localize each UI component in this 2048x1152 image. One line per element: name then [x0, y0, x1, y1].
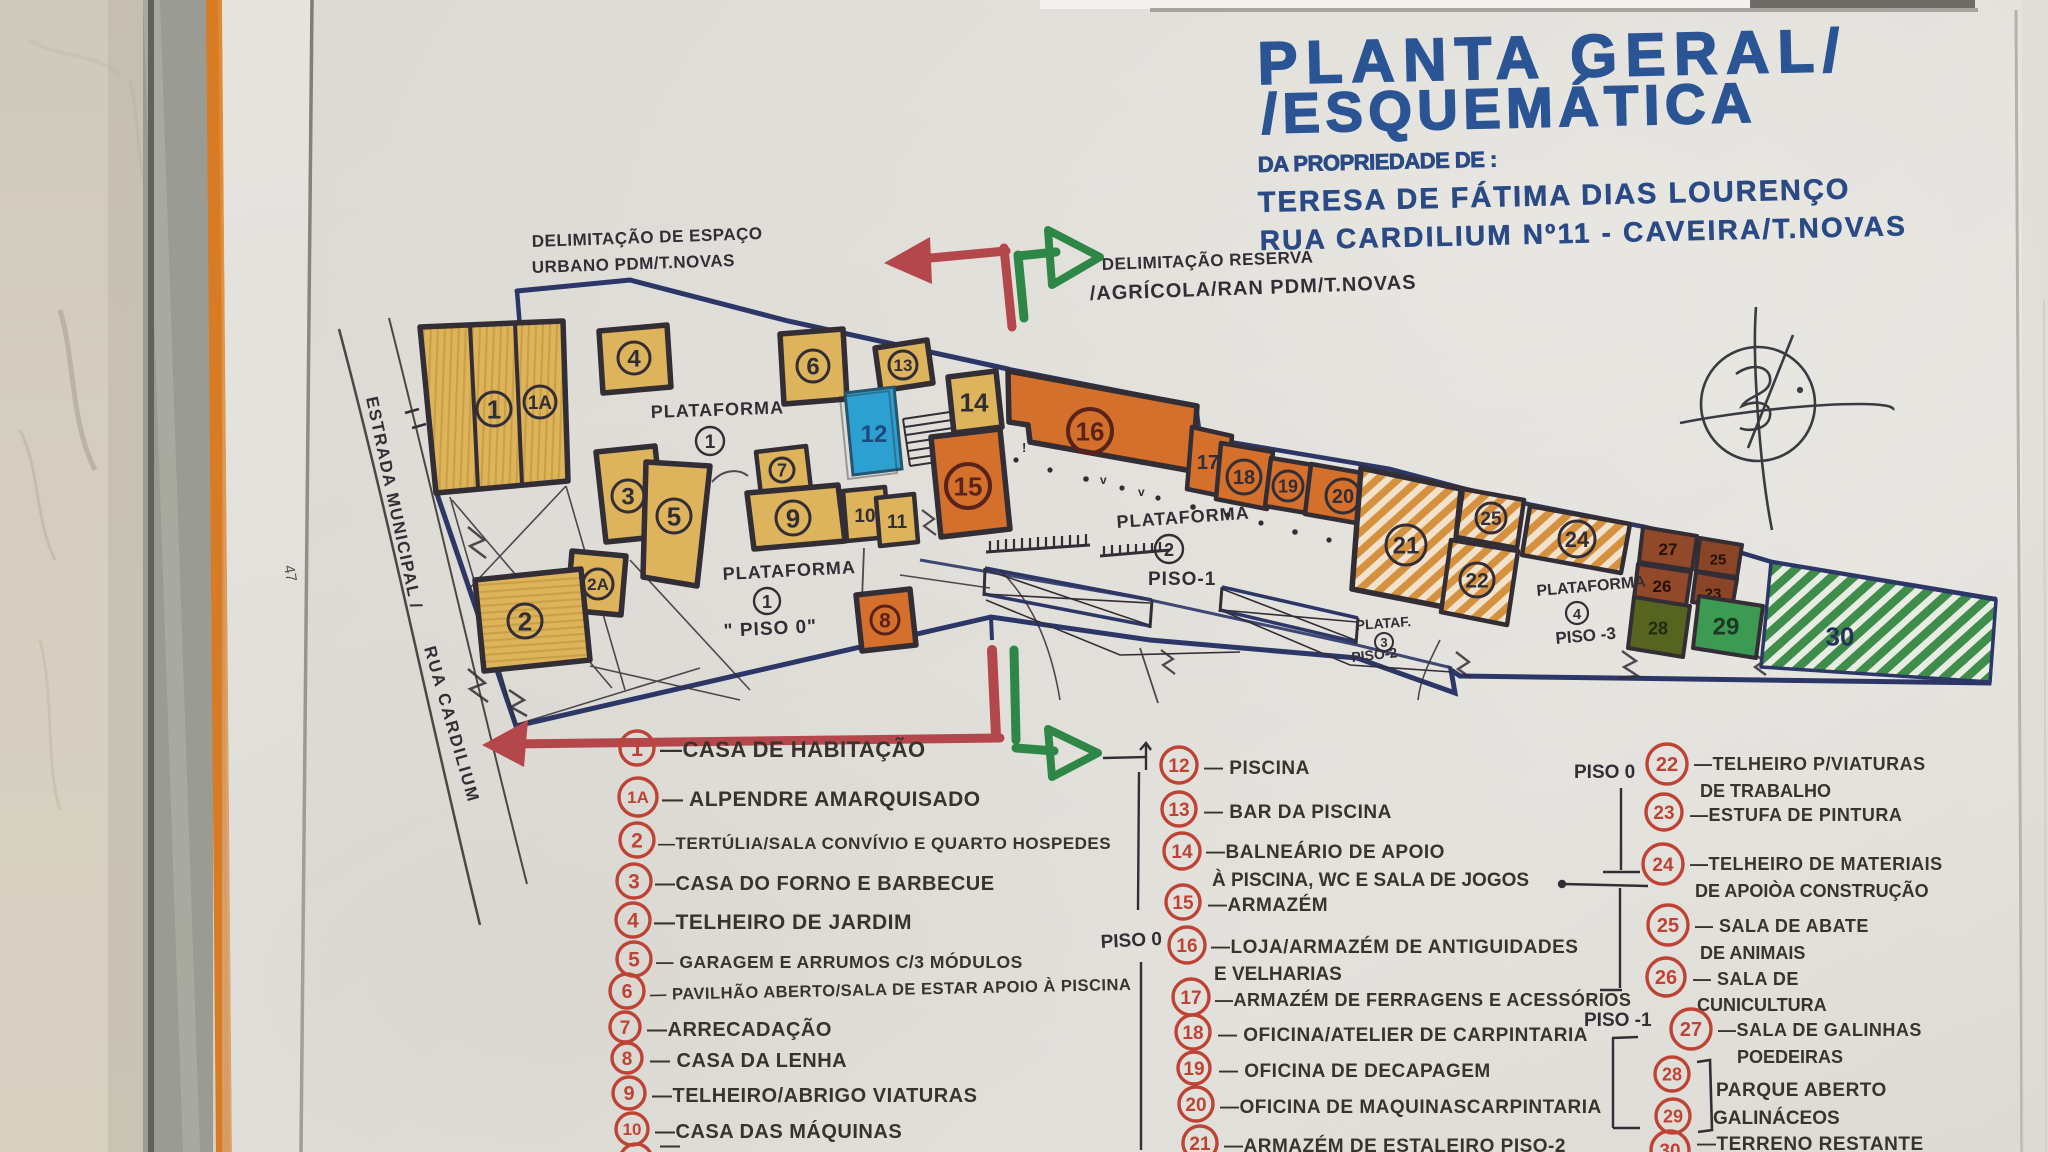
svg-text:POEDEIRAS: POEDEIRAS	[1737, 1047, 1843, 1067]
svg-text:— CASA DA LENHA: — CASA DA LENHA	[650, 1050, 847, 1072]
svg-text:18: 18	[1233, 467, 1255, 489]
svg-text:PISO 0: PISO 0	[1100, 929, 1162, 953]
svg-text:30: 30	[1659, 1141, 1680, 1152]
svg-text:GALINÁCEOS: GALINÁCEOS	[1713, 1107, 1840, 1129]
svg-text:—CASA DO FORNO E BARBECUE: —CASA DO FORNO E BARBECUE	[655, 873, 995, 895]
svg-text:3: 3	[621, 484, 634, 511]
svg-text:13: 13	[894, 356, 913, 375]
svg-text:DE ANIMAIS: DE ANIMAIS	[1700, 943, 1805, 963]
svg-text:2A: 2A	[587, 575, 609, 594]
svg-text:4: 4	[627, 346, 641, 373]
svg-text:12: 12	[1168, 756, 1189, 777]
svg-text:DE TRABALHO: DE TRABALHO	[1700, 781, 1831, 801]
svg-text:— GARAGEM E ARRUMOS C/3 MÓDULO: — GARAGEM E ARRUMOS C/3 MÓDULOS	[656, 951, 1023, 972]
svg-text:—TERTÚLIA/SALA CONVÍVIO E QUAR: —TERTÚLIA/SALA CONVÍVIO E QUARTO HOSPEDE…	[658, 834, 1111, 853]
svg-text:—BALNEÁRIO DE APOIO: —BALNEÁRIO DE APOIO	[1206, 841, 1445, 863]
svg-text:2: 2	[518, 606, 532, 636]
svg-text:4: 4	[1573, 606, 1582, 623]
svg-text:— PISCINA: — PISCINA	[1204, 758, 1310, 779]
svg-text:18: 18	[1182, 1023, 1203, 1044]
svg-text:—TELHEIRO/ABRIGO VIATURAS: —TELHEIRO/ABRIGO VIATURAS	[652, 1085, 977, 1107]
svg-text:22: 22	[1656, 754, 1678, 776]
svg-text:27: 27	[1659, 540, 1678, 559]
svg-text:—ARMAZÉM DE FERRAGENS E ACESSÓ: —ARMAZÉM DE FERRAGENS E ACESSÓRIOS	[1215, 989, 1631, 1010]
svg-text:28: 28	[1662, 1064, 1682, 1084]
svg-text:24: 24	[1652, 855, 1674, 876]
svg-text:13: 13	[1168, 800, 1189, 821]
svg-text:14: 14	[1171, 842, 1193, 863]
svg-text:16: 16	[1076, 416, 1105, 446]
svg-text:21: 21	[1393, 533, 1420, 560]
svg-text:8: 8	[622, 1049, 633, 1070]
svg-text:1: 1	[762, 592, 772, 612]
svg-text:— BAR DA PISCINA: — BAR DA PISCINA	[1204, 802, 1392, 823]
svg-text:CUNICULTURA: CUNICULTURA	[1697, 995, 1827, 1015]
svg-text:DE APOIÒA CONSTRUÇÃO: DE APOIÒA CONSTRUÇÃO	[1695, 880, 1929, 901]
svg-text:10: 10	[623, 1120, 642, 1139]
svg-text:PISO 0: PISO 0	[1574, 762, 1635, 783]
svg-text:PARQUE ABERTO: PARQUE ABERTO	[1716, 1080, 1887, 1101]
svg-text:PISO-1: PISO-1	[1148, 569, 1216, 590]
svg-text:27: 27	[1680, 1019, 1702, 1041]
svg-text:3: 3	[628, 871, 640, 894]
svg-text:17: 17	[1197, 452, 1219, 474]
svg-text:7: 7	[620, 1018, 631, 1039]
svg-text:26: 26	[1653, 577, 1672, 596]
svg-text:6: 6	[806, 354, 819, 381]
svg-text:21: 21	[1189, 1134, 1211, 1152]
svg-text:— OFICINA/ATELIER DE CARPINTAR: — OFICINA/ATELIER DE CARPINTARIA	[1218, 1025, 1588, 1046]
svg-text:5: 5	[667, 501, 681, 531]
svg-text:11: 11	[887, 512, 908, 533]
svg-text:—CASA DE HABITAÇÃO: —CASA DE HABITAÇÃO	[660, 737, 926, 762]
svg-text:47: 47	[280, 564, 300, 583]
svg-text:12: 12	[861, 421, 888, 448]
svg-text:—ESTUFA DE PINTURA: —ESTUFA DE PINTURA	[1690, 805, 1902, 825]
svg-text:—ARMAZÉM DE ESTALEIRO PISO-2: —ARMAZÉM DE ESTALEIRO PISO-2	[1224, 1135, 1566, 1152]
svg-text:v: v	[1138, 485, 1145, 499]
svg-text:—TELHEIRO DE JARDIM: —TELHEIRO DE JARDIM	[654, 911, 912, 934]
svg-text:15: 15	[1172, 893, 1194, 914]
svg-text:19: 19	[1278, 476, 1298, 496]
svg-text:—ARMAZÉM: —ARMAZÉM	[1208, 894, 1328, 916]
svg-text:—: —	[660, 1135, 680, 1152]
svg-text:—SALA DE GALINHAS: —SALA DE GALINHAS	[1718, 1020, 1922, 1040]
svg-text:—TELHEIRO P/VIATURAS: —TELHEIRO P/VIATURAS	[1694, 754, 1926, 774]
svg-text:25: 25	[1710, 551, 1727, 568]
svg-text:19: 19	[1183, 1059, 1204, 1080]
svg-text:20: 20	[1332, 486, 1354, 508]
svg-text:1: 1	[705, 432, 716, 453]
svg-text:v: v	[1100, 473, 1107, 487]
svg-text:7: 7	[777, 460, 787, 480]
svg-text:/ESQUEMÁTICA: /ESQUEMÁTICA	[1261, 71, 1758, 145]
svg-text:23: 23	[1653, 803, 1674, 824]
svg-text:10: 10	[854, 506, 875, 527]
svg-text:— SALA DE: — SALA DE	[1693, 969, 1799, 989]
svg-text:9: 9	[623, 1083, 634, 1105]
svg-text:1: 1	[487, 394, 501, 424]
svg-text:6: 6	[621, 981, 632, 1003]
svg-text:1: 1	[631, 736, 643, 761]
svg-text:1A: 1A	[528, 393, 553, 414]
svg-text:25: 25	[1657, 915, 1679, 937]
svg-text:29: 29	[1663, 1106, 1683, 1126]
svg-text:8: 8	[879, 610, 891, 633]
svg-text:1A: 1A	[627, 788, 649, 807]
svg-text:—TERRENO RESTANTE: —TERRENO RESTANTE	[1697, 1134, 1924, 1152]
svg-text:14: 14	[960, 387, 989, 417]
svg-text:— SALA DE ABATE: — SALA DE ABATE	[1695, 916, 1869, 936]
svg-text:29: 29	[1713, 614, 1740, 641]
svg-text:2: 2	[1164, 540, 1174, 560]
svg-text:30: 30	[1826, 621, 1855, 651]
svg-text:E VELHARIAS: E VELHARIAS	[1214, 964, 1342, 985]
svg-text:—OFICINA DE MAQUINASCARPINTARI: —OFICINA DE MAQUINASCARPINTARIA	[1220, 1097, 1602, 1118]
svg-text:!: !	[1022, 440, 1026, 455]
svg-text:20: 20	[1185, 1095, 1206, 1116]
svg-text:25: 25	[1480, 509, 1502, 530]
svg-text:9: 9	[786, 503, 800, 533]
svg-text:4: 4	[627, 910, 639, 933]
svg-text:15: 15	[954, 471, 983, 501]
svg-text:—LOJA/ARMAZÉM DE ANTIGUIDADES: —LOJA/ARMAZÉM DE ANTIGUIDADES	[1211, 936, 1578, 958]
svg-text:—CASA DAS MÁQUINAS: —CASA DAS MÁQUINAS	[655, 1120, 902, 1143]
svg-text:24: 24	[1565, 527, 1590, 552]
svg-text:— OFICINA DE DECAPAGEM: — OFICINA DE DECAPAGEM	[1219, 1061, 1491, 1082]
svg-text:PISO -1: PISO -1	[1584, 1010, 1652, 1031]
svg-text:26: 26	[1655, 967, 1677, 989]
svg-text:22: 22	[1465, 570, 1488, 593]
svg-text:—TELHEIRO DE MATERIAIS: —TELHEIRO DE MATERIAIS	[1690, 854, 1943, 874]
svg-text:2: 2	[631, 830, 643, 853]
svg-text:À PISCINA, WC E SALA DE JOGOS: À PISCINA, WC E SALA DE JOGOS	[1212, 869, 1529, 891]
svg-text:16: 16	[1176, 936, 1197, 957]
svg-text:5: 5	[628, 949, 640, 972]
svg-text:—ARRECADAÇÃO: —ARRECADAÇÃO	[647, 1018, 832, 1041]
svg-text:— ALPENDRE AMARQUISADO: — ALPENDRE AMARQUISADO	[662, 788, 981, 811]
svg-text:17: 17	[1180, 988, 1201, 1009]
svg-text:28: 28	[1648, 618, 1668, 638]
